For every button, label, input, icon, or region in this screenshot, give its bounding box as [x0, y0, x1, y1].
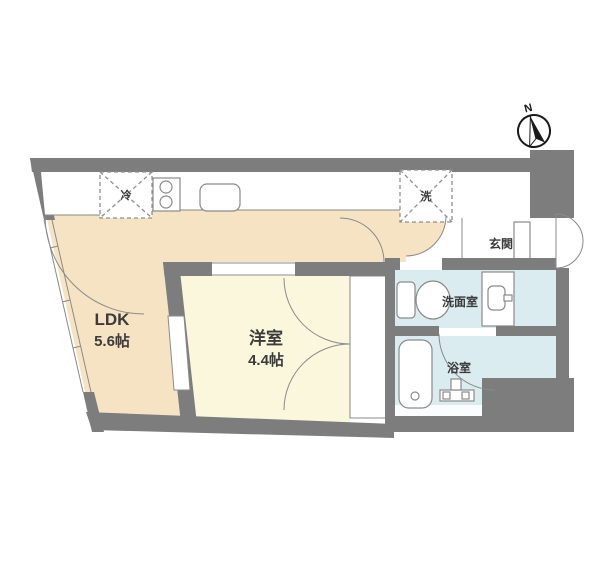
bath-faucet-stub-icon	[451, 379, 461, 390]
bathroom-label: 浴室	[447, 360, 471, 375]
floorplan-drawing: LDK 5.6帖 洋室 4.4帖 玄関 洗面室 浴室 冷 洗 N	[0, 0, 602, 579]
faucet-knob-icon	[462, 392, 469, 399]
washroom-label: 洗面室	[442, 294, 478, 309]
wall-washroom-top-b	[442, 258, 556, 270]
wall-top-right-block	[530, 150, 574, 218]
wall-bath-divider-a	[390, 326, 439, 336]
floorplan-canvas: LDK 5.6帖 洋室 4.4帖 玄関 洗面室 浴室 冷 洗 N	[0, 0, 602, 579]
wall-top	[30, 158, 530, 172]
western-room-floor	[179, 276, 350, 424]
wall-western-top-right	[295, 262, 390, 276]
wall-bottom-right-block	[482, 378, 574, 432]
shoe-cabinet-icon	[514, 222, 530, 264]
refrigerator-label: 冷	[121, 188, 132, 202]
partition-opening	[212, 262, 295, 276]
wall-right	[556, 268, 569, 380]
ldk-size-label: 5.6帖	[94, 332, 130, 350]
kitchen-sink-icon	[200, 184, 240, 211]
vanity-tap-icon	[504, 295, 512, 301]
kitchen-top-left-area	[41, 172, 100, 215]
compass-north-label: N	[523, 102, 534, 116]
entrance-label: 玄関	[489, 236, 513, 251]
western-room-size-label: 4.4帖	[248, 351, 284, 369]
faucet-knob-icon	[443, 392, 450, 399]
wall-bath-divider-b	[496, 326, 556, 336]
wall-washroom-top-a	[390, 258, 400, 270]
wall-bathroom-bottom	[390, 416, 482, 432]
bathtub-drain-icon	[411, 392, 419, 400]
wall-wet-left	[385, 258, 395, 432]
washing-machine-label: 洗	[421, 189, 432, 203]
vanity-basin-icon	[488, 286, 505, 310]
burner-icon	[160, 196, 172, 208]
toilet-tank-icon	[397, 282, 415, 318]
burner-icon	[160, 181, 172, 193]
compass: N	[511, 99, 553, 150]
ldk-label: LDK	[95, 310, 131, 329]
western-room-label: 洋室	[249, 328, 283, 348]
